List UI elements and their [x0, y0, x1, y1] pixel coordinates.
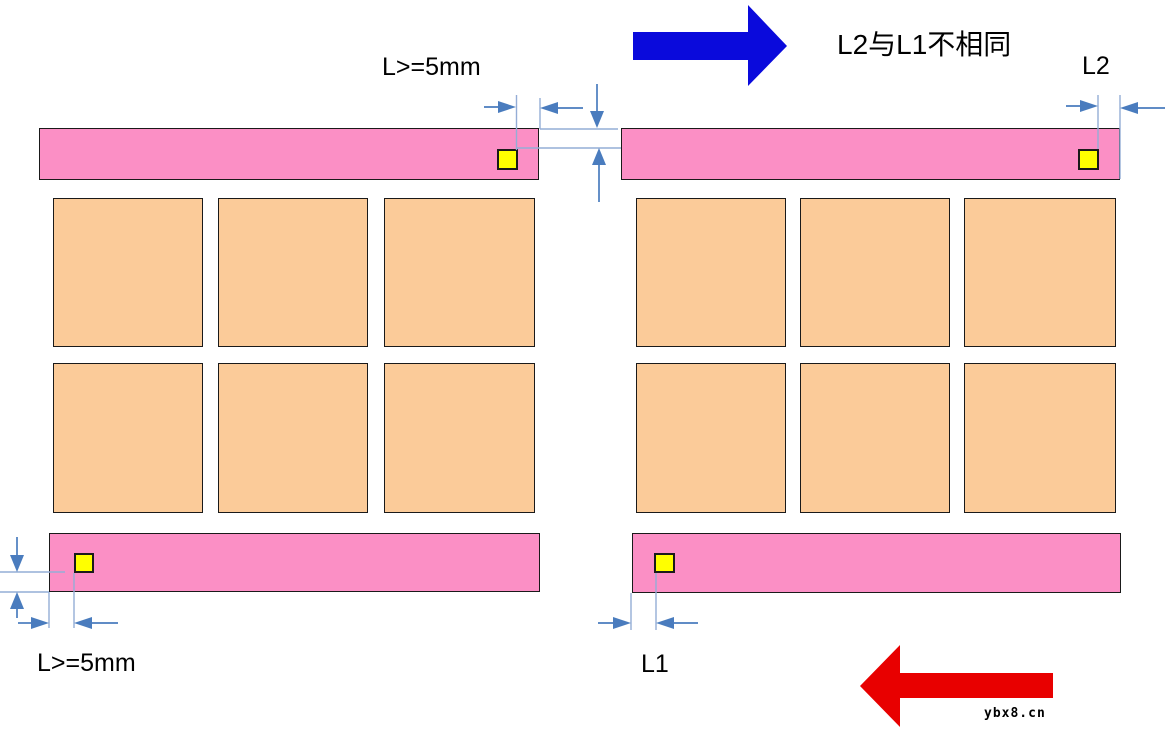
panel-rail-bottom-right — [632, 533, 1121, 593]
dimension-arrowhead — [74, 617, 92, 629]
fiducial-mark-bottom-left — [74, 553, 94, 573]
fiducial-mark-top-left — [497, 149, 518, 170]
panel-rail-top-right — [621, 128, 1120, 180]
pcb-unit — [53, 198, 203, 347]
panel-rail-bottom-left — [49, 533, 540, 592]
pcb-unit — [636, 363, 786, 513]
note-text: L2与L1不相同 — [837, 31, 1011, 59]
pcb-unit — [218, 363, 368, 513]
dimension-arrowhead — [592, 148, 606, 165]
l2-label: L2 — [1082, 54, 1110, 79]
pcb-unit — [800, 363, 950, 513]
panel-diagram-canvas: L>=5mm L2 L2与L1不相同 L>=5mm L1 ybx8.cn — [0, 0, 1165, 746]
min-distance-label-top: L>=5mm — [382, 55, 481, 80]
dimension-arrowhead — [1080, 100, 1098, 112]
watermark-text: ybx8.cn — [984, 707, 1046, 720]
pcb-unit — [53, 363, 203, 513]
dimension-arrowhead — [590, 111, 604, 128]
dimension-arrowhead — [540, 102, 558, 114]
dimension-arrowhead — [613, 617, 631, 629]
pcb-unit — [384, 363, 535, 513]
pcb-unit — [964, 198, 1116, 347]
fiducial-mark-bottom-right — [654, 553, 675, 573]
min-distance-label-bottom: L>=5mm — [37, 651, 136, 676]
pcb-unit — [384, 198, 535, 347]
fiducial-mark-top-right — [1078, 149, 1099, 170]
dimension-arrowhead — [10, 592, 24, 609]
blue-right-arrow — [633, 5, 787, 86]
dimension-arrowhead — [1120, 102, 1138, 114]
dimension-arrowhead — [31, 617, 49, 629]
l1-label: L1 — [641, 652, 669, 677]
dimension-arrowhead — [656, 617, 674, 629]
dimension-arrowhead — [10, 555, 24, 572]
dimension-arrowhead — [498, 101, 516, 113]
pcb-unit — [800, 198, 950, 347]
pcb-unit — [636, 198, 786, 347]
panel-rail-top-left — [39, 128, 539, 180]
pcb-unit — [218, 198, 368, 347]
pcb-unit — [964, 363, 1116, 513]
